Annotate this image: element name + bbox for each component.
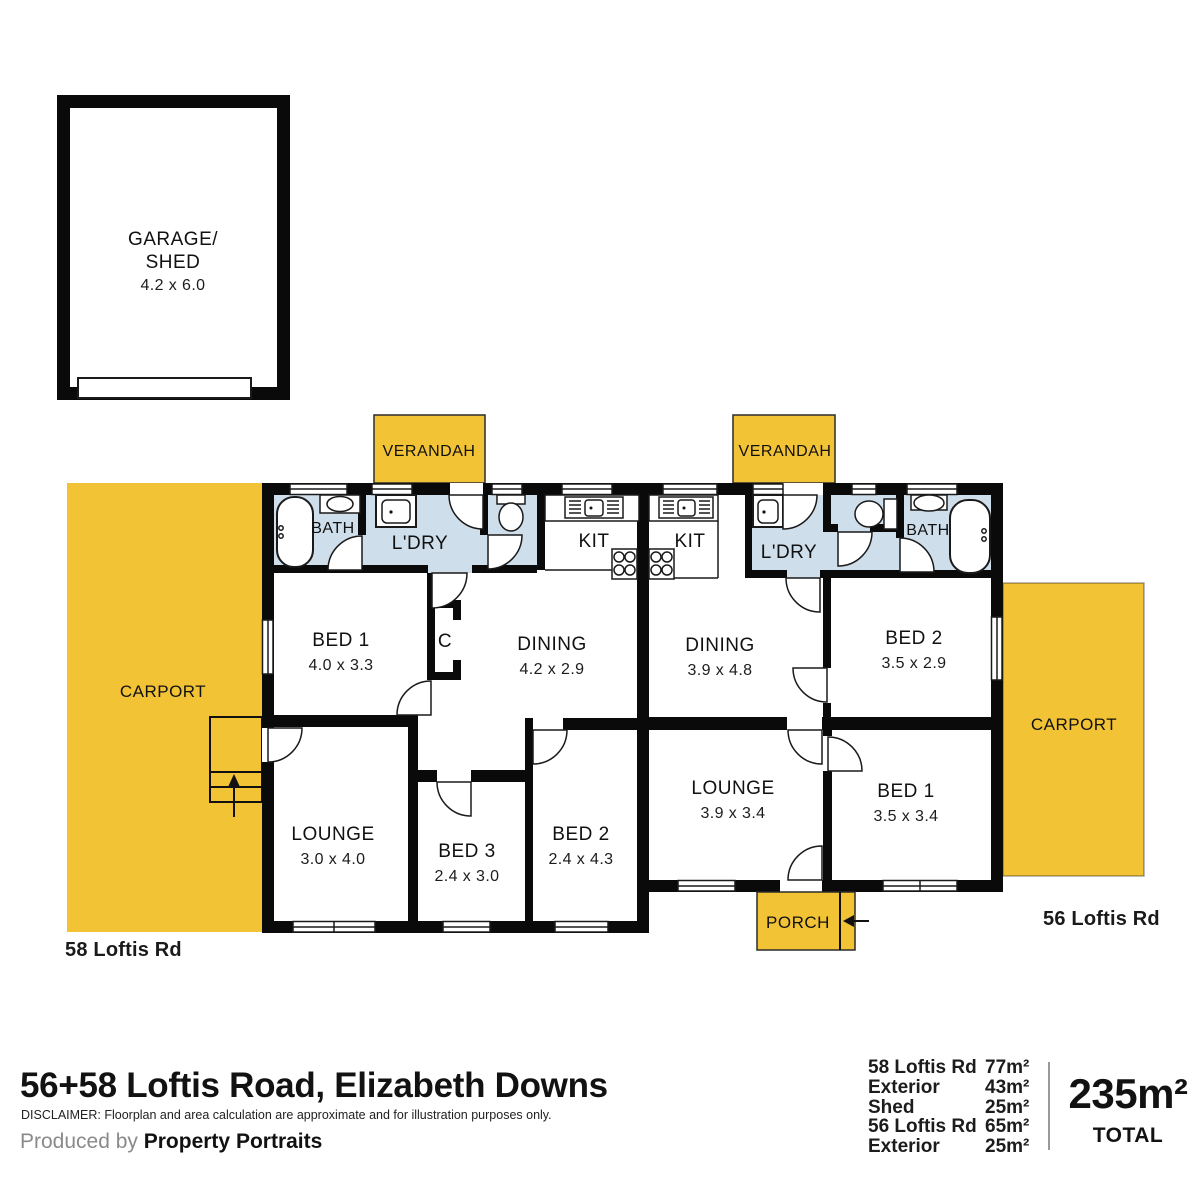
area-row-value: 65m² xyxy=(985,1117,1029,1137)
u56-bath-label: BATH xyxy=(906,522,949,539)
area-row-label: Shed xyxy=(868,1098,985,1118)
u58-kit-label: KIT xyxy=(578,531,609,552)
table-row: 56 Loftis Rd65m² xyxy=(868,1117,1029,1137)
bathtub-fixture xyxy=(277,497,313,567)
garage-label-2: SHED xyxy=(146,252,201,273)
area-row-value: 25m² xyxy=(985,1098,1029,1118)
table-row: Shed25m² xyxy=(868,1098,1029,1118)
u56-dining-dims: 3.9 x 4.8 xyxy=(688,662,753,679)
carport-left xyxy=(67,483,262,932)
u58-bed3-dims: 2.4 x 3.0 xyxy=(435,868,500,885)
u58-bed2-dims: 2.4 x 4.3 xyxy=(549,851,614,868)
u58-dining-label: DINING xyxy=(517,634,587,655)
u58-lounge-dims: 3.0 x 4.0 xyxy=(301,851,366,868)
street-label-56: 56 Loftis Rd xyxy=(1043,908,1160,931)
verandah-left-label: VERANDAH xyxy=(383,443,476,460)
u58-ldry-label: L'DRY xyxy=(392,533,448,554)
porch: PORCH xyxy=(757,892,869,950)
floorplan-page: GARAGE/ SHED 4.2 x 6.0 xyxy=(0,0,1200,1200)
u56-ldry-label: L'DRY xyxy=(761,542,817,563)
total-label: TOTAL xyxy=(1058,1124,1198,1148)
table-row: Exterior43m² xyxy=(868,1078,1029,1098)
u58-bed1-dims: 4.0 x 3.3 xyxy=(309,657,374,674)
u56-dining-label: DINING xyxy=(685,635,755,656)
kitchen-sink-fixture xyxy=(545,495,639,521)
area-row-value: 77m² xyxy=(985,1058,1029,1078)
laundry-trough-fixture xyxy=(753,495,783,527)
u56-bed2-dims: 3.5 x 2.9 xyxy=(882,655,947,672)
floorplan-drawing: GARAGE/ SHED 4.2 x 6.0 xyxy=(0,0,1200,1020)
toilet-fixture xyxy=(855,499,897,529)
area-row-label: Exterior xyxy=(868,1137,985,1157)
area-row-value: 25m² xyxy=(985,1137,1029,1157)
u58-cupboard-label: C xyxy=(438,631,452,652)
total-area: 235m² xyxy=(1058,1070,1198,1118)
u56-lounge-dims: 3.9 x 3.4 xyxy=(701,805,766,822)
u58-dining-dims: 4.2 x 2.9 xyxy=(520,661,585,678)
verandah-right-label: VERANDAH xyxy=(739,443,832,460)
credit-prefix: Produced by xyxy=(20,1130,144,1153)
cooktop-fixture xyxy=(649,549,674,579)
credit-line: Produced by Property Portraits xyxy=(20,1130,322,1154)
u56-bed2-label: BED 2 xyxy=(885,628,942,649)
garage-shed: GARAGE/ SHED 4.2 x 6.0 xyxy=(57,95,290,400)
area-row-label: 58 Loftis Rd xyxy=(868,1058,985,1078)
u58-bed2-label: BED 2 xyxy=(552,824,609,845)
area-row-label: Exterior xyxy=(868,1078,985,1098)
u56-bed1-label: BED 1 xyxy=(877,781,934,802)
table-row: 58 Loftis Rd77m² xyxy=(868,1058,1029,1078)
page-title: 56+58 Loftis Road, Elizabeth Downs xyxy=(20,1066,608,1106)
garage-label-1: GARAGE/ xyxy=(128,229,218,250)
toilet-fixture xyxy=(497,495,525,531)
carport-right-label: CARPORT xyxy=(1031,715,1117,734)
u58-bath-label: BATH xyxy=(311,520,354,537)
garage-dims: 4.2 x 6.0 xyxy=(141,277,206,294)
area-summary-table: 58 Loftis Rd77m² Exterior43m² Shed25m² 5… xyxy=(868,1058,1029,1157)
kitchen-sink-fixture xyxy=(649,495,718,521)
area-row-value: 43m² xyxy=(985,1078,1029,1098)
cooktop-fixture xyxy=(612,549,637,579)
entry-steps xyxy=(210,717,262,817)
credit-brand: Property Portraits xyxy=(144,1130,323,1153)
summary-divider xyxy=(1048,1062,1050,1150)
street-label-58: 58 Loftis Rd xyxy=(65,939,182,962)
basin-fixture xyxy=(911,495,947,511)
u56-bed1-dims: 3.5 x 3.4 xyxy=(874,808,939,825)
u58-bed3-label: BED 3 xyxy=(438,841,495,862)
u56-lounge-label: LOUNGE xyxy=(691,778,774,799)
table-row: Exterior25m² xyxy=(868,1137,1029,1157)
garage-door xyxy=(78,378,251,398)
disclaimer-text: DISCLAIMER: Floorplan and area calculati… xyxy=(21,1108,552,1122)
total-block: 235m² TOTAL xyxy=(1058,1070,1198,1148)
u58-lounge-label: LOUNGE xyxy=(291,824,374,845)
laundry-trough-fixture xyxy=(376,495,416,527)
area-row-label: 56 Loftis Rd xyxy=(868,1117,985,1137)
porch-label: PORCH xyxy=(766,913,830,932)
u56-kit-label: KIT xyxy=(674,531,705,552)
carport-left-label: CARPORT xyxy=(120,682,206,701)
u58-bed1-label: BED 1 xyxy=(312,630,369,651)
